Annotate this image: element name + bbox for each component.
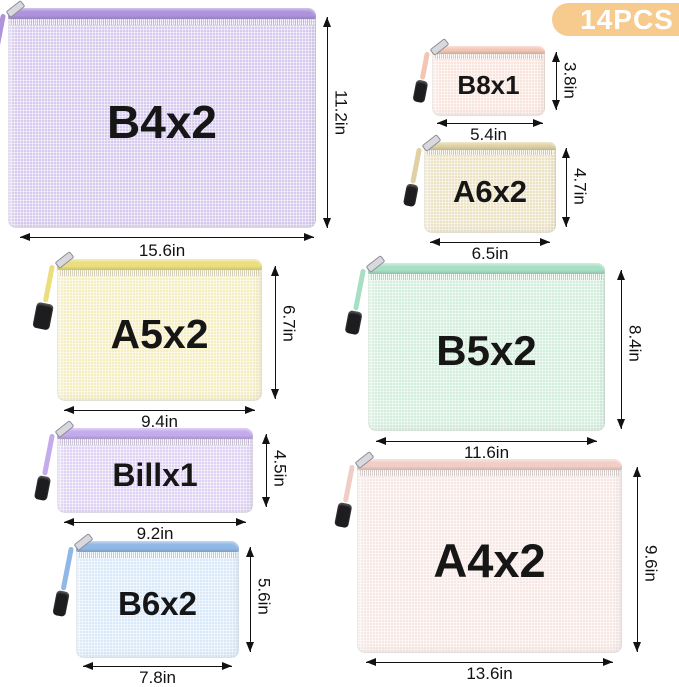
height-dimension: 5.6in bbox=[254, 578, 273, 615]
width-dimension: 6.5in bbox=[424, 245, 556, 264]
zipper-cord bbox=[0, 14, 6, 152]
zipper-teeth bbox=[60, 270, 259, 276]
zipper-strip bbox=[57, 428, 253, 439]
height-dimension: 9.6in bbox=[641, 545, 660, 582]
zipper-strip bbox=[424, 142, 556, 150]
height-arrow bbox=[275, 266, 276, 399]
zipper-cord bbox=[343, 465, 355, 503]
pouch-a6x2: A6x2 bbox=[424, 142, 556, 233]
zipper-pull-tab bbox=[32, 302, 54, 331]
pouch-a4x2: A4x2 bbox=[357, 459, 622, 653]
height-arrow bbox=[266, 434, 267, 507]
pouch-b6x2: B6x2 bbox=[76, 541, 239, 658]
width-dimension: 15.6in bbox=[8, 242, 316, 261]
width-dimension: 13.6in bbox=[357, 665, 622, 684]
pouch-b8x1: B8x1 bbox=[432, 46, 545, 116]
pouch-size-label: A6x2 bbox=[453, 176, 527, 207]
width-arrow bbox=[64, 522, 246, 523]
zipper-cord bbox=[410, 148, 422, 184]
product-size-diagram: 14PCS B4x2 15.6in 11.2in B8x1 5.4in 3.8i… bbox=[0, 0, 679, 687]
pouch-billx1: Billx1 bbox=[57, 428, 253, 513]
zipper-strip bbox=[432, 46, 545, 54]
zipper-teeth bbox=[371, 274, 602, 280]
height-dimension: 11.2in bbox=[331, 90, 350, 135]
zipper-pull-tab bbox=[412, 79, 428, 103]
zipper-pull-tab bbox=[402, 183, 418, 207]
height-dimension: 3.8in bbox=[560, 62, 579, 99]
pouch-size-label: A4x2 bbox=[433, 537, 545, 584]
zipper-teeth bbox=[360, 470, 619, 476]
height-dimension: 4.7in bbox=[570, 168, 589, 205]
height-arrow bbox=[621, 270, 622, 429]
zipper-pull-tab bbox=[334, 502, 352, 528]
zipper-teeth bbox=[427, 150, 553, 155]
zipper-teeth bbox=[435, 54, 542, 59]
width-arrow bbox=[83, 666, 232, 667]
width-arrow bbox=[376, 441, 597, 442]
width-arrow bbox=[430, 242, 550, 243]
zipper-teeth bbox=[11, 19, 313, 25]
pouch-size-label: B6x2 bbox=[118, 587, 197, 620]
zipper-strip bbox=[357, 459, 622, 470]
height-dimension: 8.4in bbox=[625, 325, 644, 362]
pouch-a5x2: A5x2 bbox=[57, 259, 262, 401]
zipper-pull-tab bbox=[52, 590, 70, 617]
width-arrow bbox=[437, 123, 543, 124]
zipper-pull-tab bbox=[33, 475, 50, 501]
zipper-cord bbox=[61, 547, 74, 591]
zipper-cord bbox=[420, 52, 430, 80]
zipper-pull-tab bbox=[344, 310, 362, 335]
width-arrow bbox=[20, 237, 314, 238]
zipper-strip bbox=[368, 263, 605, 274]
zipper-teeth bbox=[79, 552, 236, 558]
height-arrow bbox=[566, 148, 567, 227]
height-arrow bbox=[556, 52, 557, 110]
piece-count-badge: 14PCS bbox=[552, 3, 679, 36]
height-arrow bbox=[250, 547, 251, 652]
width-arrow bbox=[366, 662, 613, 663]
pouch-size-label: B8x1 bbox=[457, 72, 519, 98]
zipper-strip bbox=[57, 259, 262, 270]
zipper-teeth bbox=[60, 439, 250, 445]
zipper-cord bbox=[43, 265, 55, 303]
height-arrow bbox=[637, 467, 638, 652]
width-dimension: 7.8in bbox=[76, 669, 239, 687]
zipper-cord bbox=[353, 269, 366, 311]
pouch-size-label: A5x2 bbox=[110, 314, 208, 355]
zipper-cord bbox=[42, 434, 55, 476]
zipper-strip bbox=[8, 8, 316, 19]
pouch-b4x2: B4x2 bbox=[8, 8, 316, 228]
height-dimension: 6.7in bbox=[279, 305, 298, 342]
pouch-size-label: B4x2 bbox=[107, 99, 217, 145]
pouch-size-label: Billx1 bbox=[112, 459, 197, 491]
height-dimension: 4.5in bbox=[270, 450, 289, 487]
pouch-b5x2: B5x2 bbox=[368, 263, 605, 431]
height-arrow bbox=[327, 17, 328, 228]
zipper-strip bbox=[76, 541, 239, 552]
width-arrow bbox=[64, 410, 255, 411]
pouch-size-label: B5x2 bbox=[436, 330, 536, 372]
